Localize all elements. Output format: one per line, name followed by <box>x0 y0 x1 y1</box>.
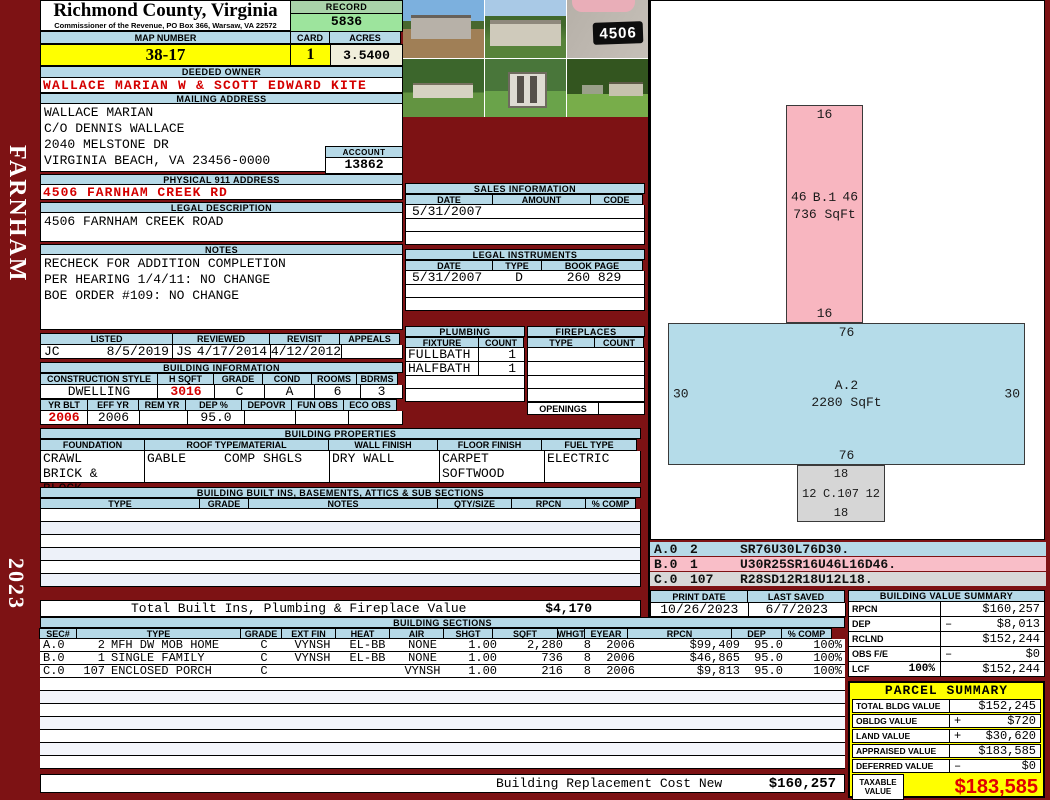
photo-home-distant <box>403 59 484 117</box>
photo-home-front <box>485 0 566 58</box>
map-card-acres-headers: MAP NUMBER CARD ACRES <box>40 31 403 44</box>
built-ins-title: BUILDING BUILT INS, BASEMENTS, ATTICS & … <box>40 487 641 498</box>
photo-shape <box>572 0 635 12</box>
parcel-summary-row: APPRAISED VALUE $183,585 <box>852 744 1041 758</box>
fixture-value: HALFBATH <box>406 362 479 375</box>
roof-header: ROOF TYPE/MATERIAL <box>144 439 329 451</box>
photo-shape <box>508 72 548 108</box>
sales-row-empty <box>405 232 645 245</box>
parcel-summary: PARCEL SUMMARY TOTAL BLDG VALUE $152,245… <box>848 681 1045 798</box>
dimension-label: 76 <box>669 325 1024 340</box>
legend-row-c: C.0107R28SD12R18U12L18. <box>650 572 1046 586</box>
notes-line: BOE ORDER #109: NO CHANGE <box>44 288 402 304</box>
appeals-header: APPEALS <box>339 333 400 345</box>
fireplace-type-header: TYPE <box>527 337 595 348</box>
table-row-empty <box>40 756 845 769</box>
bi-qty-header: QTY/SIZE <box>437 498 512 509</box>
legal-instrument-row-empty <box>405 285 645 298</box>
sales-code-header: CODE <box>590 194 643 205</box>
building-value-summary: BUILDING VALUE SUMMARY RPCN $160,257 DEP… <box>848 590 1045 677</box>
deeded-owner-label: DEEDED OWNER <box>40 66 403 78</box>
physical-address-label: PHYSICAL 911 ADDRESS <box>40 174 403 185</box>
bvs-row: LCF100% $152,244 <box>848 662 1045 677</box>
depovr-value <box>245 411 296 424</box>
sketch-section-a2: 76 30 30 A.2 2280 SqFt 76 <box>668 323 1025 465</box>
plumbing-row: FULLBATH 1 <box>405 348 525 362</box>
mailing-line: C/O DENNIS WALLACE <box>44 121 402 137</box>
yrblt-value: 2006 <box>41 411 88 424</box>
account-value: 13862 <box>325 158 403 174</box>
built-ins-row-empty <box>40 574 641 587</box>
plumbing-row-empty <box>405 376 525 389</box>
listed-value: JC8/5/2019 <box>41 345 173 358</box>
address-sign-plate: 4506 <box>593 21 644 45</box>
map-card-acres-values: 38-17 1 3.5400 <box>40 44 403 66</box>
sketch-legend: A.02SR76U30L76D30. B.01U30R25SR16U46L16D… <box>650 542 1046 587</box>
built-ins-row-empty <box>40 548 641 561</box>
section-id-label: C.107 <box>798 488 884 500</box>
openings-label: OPENINGS <box>527 402 599 415</box>
cond-value: A <box>265 385 315 398</box>
print-info: PRINT DATE LAST SAVED 10/26/2023 6/7/202… <box>650 590 846 617</box>
record-box: RECORD 5836 <box>290 0 403 31</box>
deeded-owner-value: WALLACE MARIAN W & SCOTT EDWARD KITE <box>40 78 403 93</box>
card-value: 1 <box>291 44 331 66</box>
construction-style-value: DWELLING <box>41 385 158 398</box>
sketch-section-b1: 16 46 46 B.1 736 SqFt 16 <box>786 105 863 323</box>
card-label: CARD <box>290 31 330 44</box>
li-type-value: D <box>494 271 544 284</box>
building-sections-title: BUILDING SECTIONS <box>40 617 845 628</box>
photo-grid: 4506 <box>403 0 648 117</box>
photo-home-construction <box>403 0 484 58</box>
section-id-label: A.2 2280 SqFt <box>669 377 1024 411</box>
parcel-summary-row: TOTAL BLDG VALUE $152,245 <box>852 699 1041 713</box>
physical-address-value: 4506 FARNHAM CREEK RD <box>40 185 403 200</box>
notes-label: NOTES <box>40 244 403 255</box>
print-date-value: 10/26/2023 <box>651 603 749 616</box>
built-ins-total-row: Total Built Ins, Plumbing & Fireplace Va… <box>40 600 641 617</box>
building-properties-headers: FOUNDATION ROOF TYPE/MATERIAL WALL FINIS… <box>40 439 641 451</box>
photo-shed <box>485 59 566 117</box>
wall-finish-value: DRY WALL <box>330 451 440 483</box>
revisit-value: 4/12/2012 <box>271 345 342 358</box>
funobs-value <box>296 411 349 424</box>
built-ins-total-label: Total Built Ins, Plumbing & Fireplace Va… <box>131 601 466 616</box>
section-id-label: B.1 736 SqFt <box>787 189 862 223</box>
parcel-summary-row: OBLDG VALUE +$720 <box>852 714 1041 728</box>
fireplace-row-empty <box>527 348 645 362</box>
legal-instrument-row: 5/31/2007 D 260 829 <box>405 271 645 285</box>
fireplace-row-empty <box>527 376 645 389</box>
parcel-summary-row: DEFERRED VALUE –$0 <box>852 759 1041 773</box>
built-ins-row-empty <box>40 522 641 535</box>
taxable-value-label: TAXABLE VALUE <box>852 774 904 800</box>
built-ins-row-empty <box>40 561 641 574</box>
sales-row-empty <box>405 219 645 232</box>
taxable-value-row: TAXABLE VALUE $183,585 <box>852 774 1041 800</box>
foundation-value: CRAWLBRICK & BLOCK <box>40 451 145 483</box>
bi-comp-header: % COMP <box>585 498 636 509</box>
bi-grade-header: GRADE <box>199 498 249 509</box>
effyr-value: 2006 <box>88 411 140 424</box>
grade-value: C <box>215 385 265 398</box>
li-bookpage-value: 260 829 <box>544 271 644 284</box>
parcel-summary-row: LAND VALUE +$30,620 <box>852 729 1041 743</box>
openings-value <box>599 402 645 415</box>
roof-value: GABLECOMP SHGLS <box>145 451 330 483</box>
record-value: 5836 <box>290 14 403 32</box>
built-ins-row-empty <box>40 535 641 548</box>
notes-line: RECHECK FOR ADDITION COMPLETION <box>44 256 402 272</box>
account-box: ACCOUNT 13862 <box>325 146 403 173</box>
bdrms-value: 3 <box>361 385 402 398</box>
photo-shape <box>413 83 473 98</box>
count-value: 1 <box>479 362 524 375</box>
depovr-header: DEPOVR <box>241 399 292 411</box>
reviewed-value: JS4/17/2014 <box>173 345 271 358</box>
table-row-empty <box>40 678 845 691</box>
wall-finish-header: WALL FINISH <box>328 439 438 451</box>
legal-instruments-title: LEGAL INSTRUMENTS <box>405 249 645 260</box>
replacement-cost-value: $160,257 <box>769 776 836 792</box>
building-properties-values: CRAWLBRICK & BLOCK GABLECOMP SHGLS DRY W… <box>40 451 641 483</box>
foundation-header: FOUNDATION <box>40 439 145 451</box>
fireplace-row-empty <box>527 389 645 402</box>
table-row-empty <box>40 691 845 704</box>
map-number-label: MAP NUMBER <box>40 31 291 44</box>
count-value: 1 <box>479 348 524 361</box>
fuel-type-header: FUEL TYPE <box>541 439 637 451</box>
bi-rpcn-header: RPCN <box>511 498 586 509</box>
table-row-empty <box>40 717 845 730</box>
bvs-row: RCLND $152,244 <box>848 632 1045 647</box>
photo-shape <box>530 76 536 103</box>
li-date-value: 5/31/2007 <box>406 271 494 284</box>
ecoobs-header: ECO OBS <box>343 399 397 411</box>
notes-line: PER HEARING 1/4/11: NO CHANGE <box>44 272 402 288</box>
photo-shape <box>517 76 523 103</box>
district-vertical-label: FARNHAM <box>3 145 30 283</box>
photo-address-sign: 4506 <box>567 0 648 58</box>
photo-shape <box>609 82 643 96</box>
replacement-cost-row: Building Replacement Cost New $160,257 <box>40 774 845 793</box>
sales-row: 5/31/2007 <box>405 205 645 219</box>
photo-shape <box>490 20 561 46</box>
built-ins-headers: TYPE GRADE NOTES QTY/SIZE RPCN % COMP <box>40 498 641 509</box>
funobs-header: FUN OBS <box>291 399 344 411</box>
acres-label: ACRES <box>329 31 401 44</box>
sketch-panel: 16 46 46 B.1 736 SqFt 16 76 30 30 A.2 22… <box>650 0 1045 540</box>
notes-box: RECHECK FOR ADDITION COMPLETION PER HEAR… <box>40 255 403 330</box>
photo-home-trees <box>567 59 648 117</box>
fireplace-count-header: COUNT <box>594 337 644 348</box>
remyr-header: REM YR <box>138 399 186 411</box>
plumbing-title: PLUMBING <box>405 326 525 337</box>
appeals-value <box>342 345 402 358</box>
sales-title: SALES INFORMATION <box>405 183 645 194</box>
year-vertical-label: 2023 <box>3 558 29 610</box>
county-title: Richmond County, Virginia <box>41 1 290 21</box>
dimension-label: 18 <box>798 506 884 520</box>
dimension-label: 16 <box>787 107 862 122</box>
mailing-address-label: MAILING ADDRESS <box>40 93 403 104</box>
legend-row-a: A.02SR76U30L76D30. <box>650 542 1046 556</box>
building-properties-title: BUILDING PROPERTIES <box>40 428 641 439</box>
legal-description-label: LEGAL DESCRIPTION <box>40 202 403 213</box>
sketch-section-c107: 18 12 12 C.107 18 <box>797 465 885 522</box>
sales-date-value: 5/31/2007 <box>406 205 644 218</box>
bvs-row: OBS F/E –$0 <box>848 647 1045 662</box>
bi-type-header: TYPE <box>40 498 200 509</box>
building-value-summary-title: BUILDING VALUE SUMMARY <box>848 590 1045 602</box>
plumbing-row-empty <box>405 389 525 402</box>
plumbing-count-header: COUNT <box>478 337 524 348</box>
mailing-line: WALLACE MARIAN <box>44 105 402 121</box>
dimension-label: 76 <box>669 448 1024 463</box>
ecoobs-value <box>349 411 402 424</box>
sales-amount-header: AMOUNT <box>492 194 591 205</box>
acres-value: 3.5400 <box>331 44 403 66</box>
building-info-values-1: DWELLING 3016 C A 6 3 <box>40 385 403 399</box>
bi-notes-header: NOTES <box>248 498 438 509</box>
remyr-value <box>140 411 188 424</box>
county-header-box: Richmond County, Virginia Commissioner o… <box>40 0 291 31</box>
fuel-type-value: ELECTRIC <box>545 451 641 483</box>
photo-shape <box>411 15 471 39</box>
commissioner-line: Commissioner of the Revenue, PO Box 366,… <box>41 21 290 30</box>
rooms-value: 6 <box>315 385 361 398</box>
building-info-title: BUILDING INFORMATION <box>40 362 403 373</box>
map-number-value: 38-17 <box>40 44 291 66</box>
fireplace-row-empty <box>527 362 645 376</box>
fixture-value: FULLBATH <box>406 348 479 361</box>
legal-description-value: 4506 FARNHAM CREEK ROAD <box>40 213 403 242</box>
bvs-row: DEP –$8,013 <box>848 617 1045 632</box>
table-row-empty <box>40 743 845 756</box>
taxable-value: $183,585 <box>904 774 1041 800</box>
property-record-card: FARNHAM 2023 Richmond County, Virginia C… <box>0 0 1050 800</box>
table-row-empty <box>40 704 845 717</box>
built-ins-total-value: $4,170 <box>545 601 592 616</box>
dimension-label: 16 <box>787 306 862 321</box>
legend-row-b: B.01U30R25SR16U46L16D46. <box>650 557 1046 571</box>
legal-instrument-row-empty <box>405 298 645 311</box>
building-info-values-2: 2006 2006 95.0 <box>40 411 403 425</box>
hsqft-value: 3016 <box>158 385 215 398</box>
dimension-label: 18 <box>798 467 884 481</box>
dep-pct-value: 95.0 <box>188 411 245 424</box>
openings-row: OPENINGS <box>527 402 645 415</box>
visits-values: JC8/5/2019 JS4/17/2014 4/12/2012 <box>40 345 403 359</box>
floor-finish-value: CARPETSOFTWOOD <box>440 451 545 483</box>
bvs-row: RPCN $160,257 <box>848 602 1045 617</box>
replacement-cost-label: Building Replacement Cost New <box>496 776 722 791</box>
parcel-summary-title: PARCEL SUMMARY <box>850 683 1043 699</box>
plumbing-row: HALFBATH 1 <box>405 362 525 376</box>
building-sections-table: BUILDING SECTIONS SEC# TYPE GRADE EXT FI… <box>40 617 845 769</box>
photo-shape <box>582 85 603 94</box>
fireplaces-title: FIREPLACES <box>527 326 645 337</box>
sign-number: 4506 <box>599 24 637 42</box>
last-saved-value: 6/7/2023 <box>749 603 846 616</box>
record-label: RECORD <box>290 0 403 14</box>
fireplaces-headers: TYPE COUNT <box>527 337 645 348</box>
floor-finish-header: FLOOR FINISH <box>437 439 542 451</box>
table-row-empty <box>40 730 845 743</box>
built-ins-row-empty <box>40 509 641 522</box>
table-row: C.0 107 ENCLOSED PORCH C VYNSH 1.00 216 … <box>40 665 845 678</box>
